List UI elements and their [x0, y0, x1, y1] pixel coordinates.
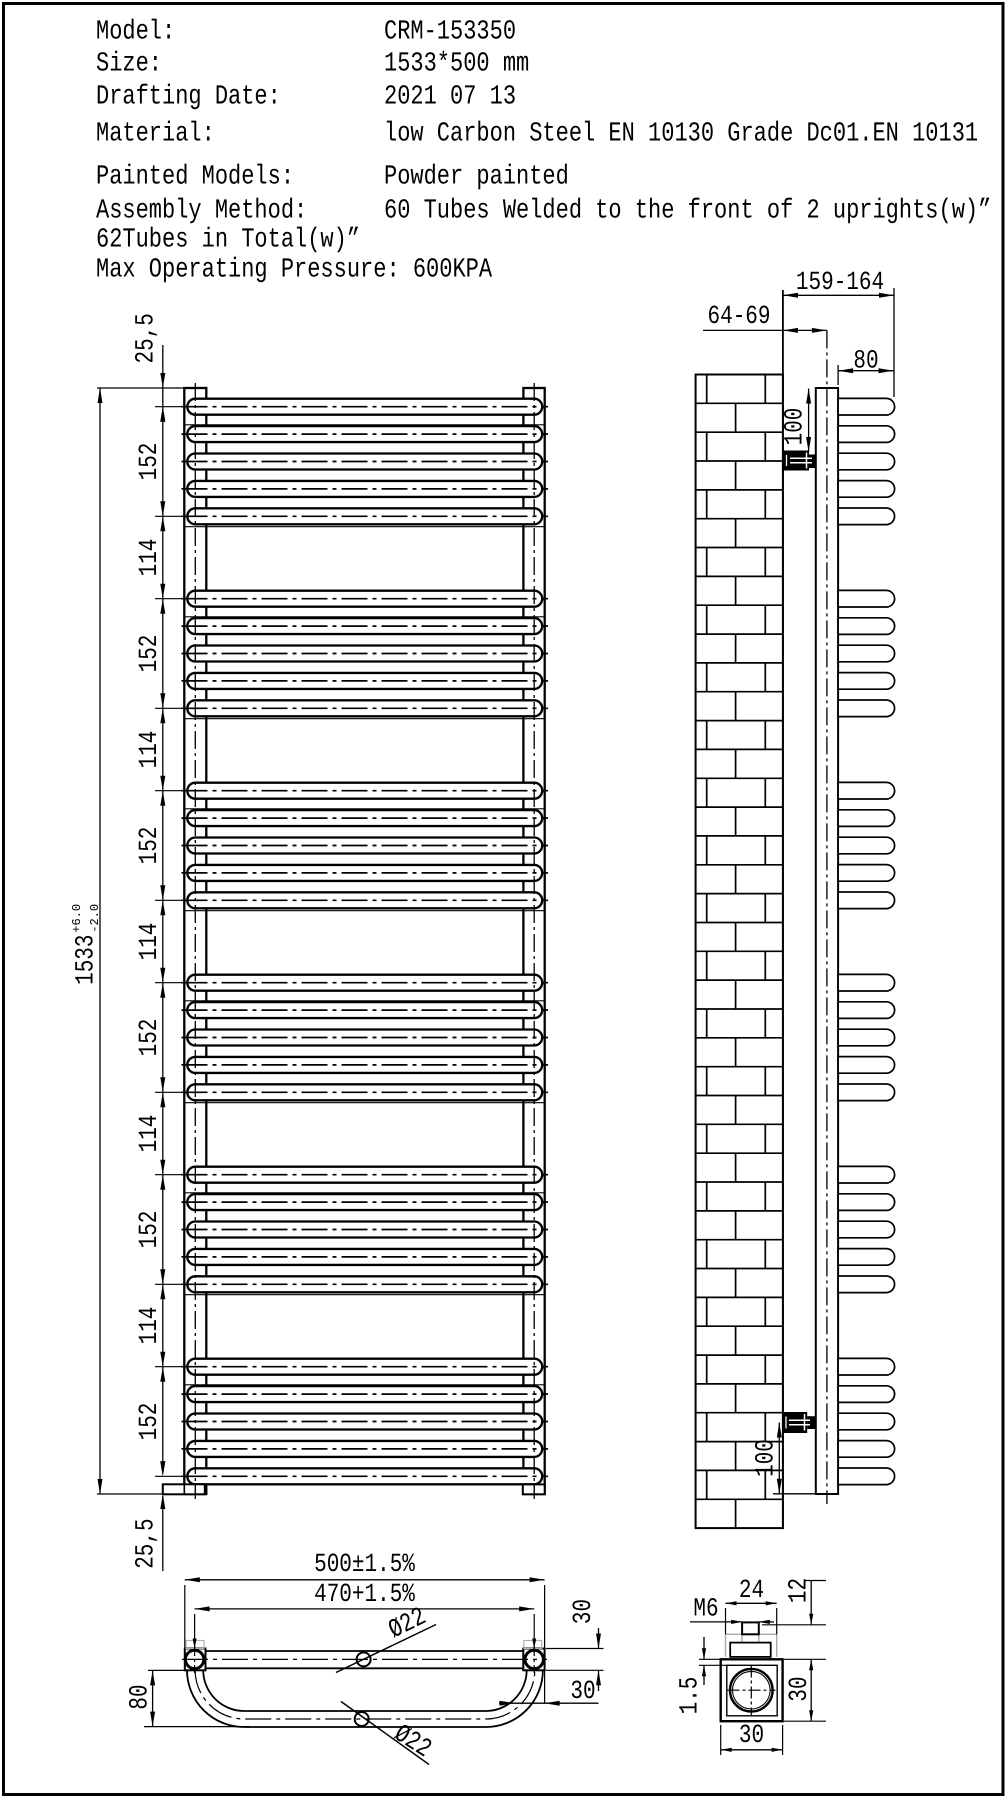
- svg-text:1533: 1533: [73, 934, 102, 984]
- svg-text:152: 152: [136, 443, 165, 481]
- svg-text:30: 30: [739, 1722, 764, 1751]
- svg-text:30: 30: [570, 1599, 599, 1624]
- svg-text:100: 100: [752, 1439, 781, 1477]
- svg-text:80: 80: [127, 1684, 156, 1709]
- svg-text:114: 114: [136, 731, 165, 769]
- svg-text:159-164: 159-164: [796, 269, 884, 298]
- svg-text:80: 80: [853, 348, 878, 377]
- svg-text:1533*500 mm: 1533*500 mm: [384, 48, 529, 79]
- svg-text:1.5: 1.5: [677, 1677, 706, 1715]
- svg-text:64-69: 64-69: [707, 303, 770, 332]
- svg-text:100: 100: [781, 408, 810, 446]
- svg-text:Model:: Model:: [96, 16, 175, 47]
- svg-text:+6.0: +6.0: [70, 904, 84, 933]
- svg-text:Drafting Date:: Drafting Date:: [96, 81, 281, 112]
- svg-text:2021 07 13: 2021 07 13: [384, 81, 516, 112]
- svg-text:114: 114: [136, 923, 165, 961]
- svg-text:24: 24: [739, 1577, 764, 1606]
- svg-text:-2.0: -2.0: [88, 904, 102, 933]
- svg-text:Max Operating Pressure: 600KPA: Max Operating Pressure: 600KPA: [96, 254, 493, 285]
- svg-text:470+1.5%: 470+1.5%: [314, 1581, 415, 1610]
- svg-text:152: 152: [136, 1211, 165, 1249]
- svg-text:25,5: 25,5: [133, 313, 162, 363]
- svg-text:CRM-153350: CRM-153350: [384, 16, 516, 47]
- svg-text:25,5: 25,5: [133, 1518, 162, 1568]
- svg-text:152: 152: [136, 1403, 165, 1441]
- svg-text:62Tubes in Total(w)”: 62Tubes in Total(w)”: [96, 224, 360, 255]
- svg-text:Painted Models:: Painted Models:: [96, 161, 294, 192]
- svg-text:152: 152: [136, 827, 165, 865]
- svg-text:12: 12: [786, 1578, 815, 1603]
- svg-text:60 Tubes Welded to the front o: 60 Tubes Welded to the front of 2 uprigh…: [384, 195, 991, 226]
- svg-text:114: 114: [136, 1307, 165, 1345]
- svg-text:low Carbon Steel EN 10130 Gra: low Carbon Steel EN 10130 Grade Dc01.EN …: [384, 118, 978, 149]
- svg-text:Material:: Material:: [96, 118, 215, 149]
- svg-text:Powder painted: Powder painted: [384, 161, 569, 192]
- svg-text:Assembly Method:: Assembly Method:: [96, 195, 307, 226]
- svg-text:500±1.5%: 500±1.5%: [314, 1551, 415, 1580]
- svg-text:152: 152: [136, 1019, 165, 1057]
- svg-text:114: 114: [136, 1115, 165, 1153]
- svg-text:Size:: Size:: [96, 48, 162, 79]
- svg-text:152: 152: [136, 635, 165, 673]
- svg-text:M6: M6: [693, 1596, 718, 1625]
- svg-text:114: 114: [136, 539, 165, 577]
